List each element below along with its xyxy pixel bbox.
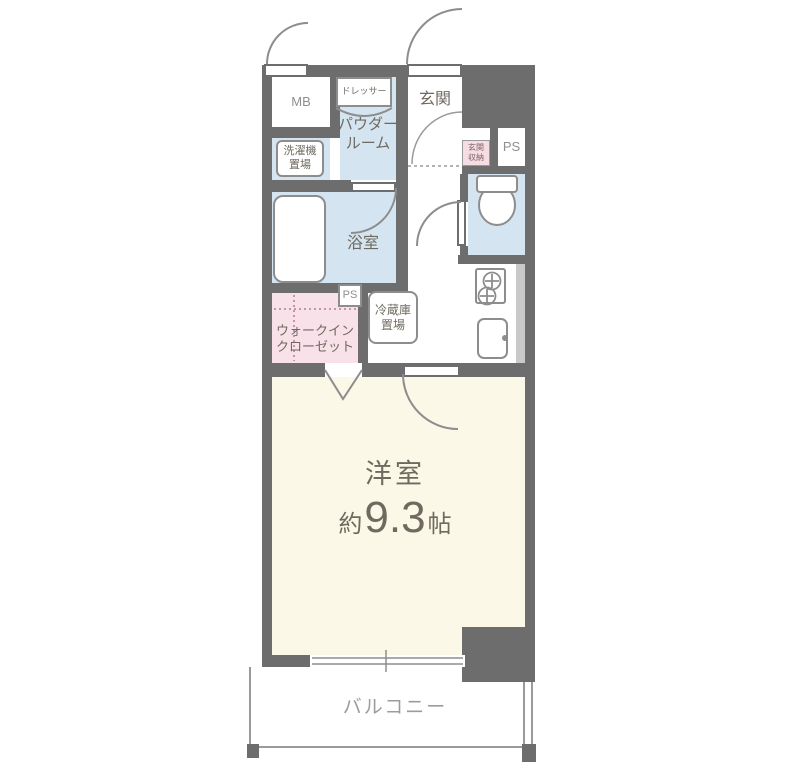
meter-box-door-arc xyxy=(267,23,308,64)
entrance-step-arc xyxy=(412,112,462,164)
toilet-door-arc xyxy=(417,202,461,246)
balcony-corner-right xyxy=(522,744,536,762)
kitchen-counter xyxy=(516,264,525,363)
wall-ps-left xyxy=(490,128,498,168)
walk-in-closet-label-line1: ウォークイン xyxy=(266,323,364,339)
powder-room-label-line1: パウダー xyxy=(330,116,406,135)
floor-plan: ドレッサー 洗濯機 置場 冷蔵庫 置場 PS PS 玄関 収納 xyxy=(0,0,800,770)
pipe-space-top-box: PS xyxy=(498,128,525,166)
wall-toilet-left-upper xyxy=(460,174,468,202)
entrance-storage-box: 玄関 収納 xyxy=(462,140,490,166)
walk-in-closet-label: ウォークイン クローゼット xyxy=(266,323,364,356)
wall-top-right-block xyxy=(462,65,535,128)
bathroom-label: 浴室 xyxy=(330,234,396,254)
washer-space-label-line2: 置場 xyxy=(289,159,311,173)
entrance-door-leaf xyxy=(407,64,462,77)
wall-main-room-top xyxy=(262,363,535,377)
kitchen-sink xyxy=(477,318,508,359)
pipe-space-mid-label: PS xyxy=(343,289,358,303)
entrance-door-arc xyxy=(407,9,462,64)
bathtub xyxy=(273,195,326,283)
closet-door-opening xyxy=(325,363,362,377)
entrance-storage-label-line1: 玄関 xyxy=(468,143,484,153)
pipe-space-mid-box: PS xyxy=(338,284,362,307)
wall-right xyxy=(525,128,535,627)
main-room-label: 洋室 xyxy=(320,458,470,492)
walk-in-closet-label-line2: クローゼット xyxy=(266,339,364,355)
main-room-size-unit: 帖 xyxy=(428,510,452,540)
fridge-space-label-line1: 冷蔵庫 xyxy=(375,303,411,318)
meter-box-label: MB xyxy=(272,94,330,110)
balcony-corner-left xyxy=(247,744,259,758)
balcony-label: バルコニー xyxy=(320,696,470,720)
main-room-size-prefix: 約 xyxy=(338,510,362,540)
entrance-storage-label-line2: 収納 xyxy=(468,153,484,163)
main-room-size-label: 約 9.3 帖 xyxy=(300,490,490,545)
washer-space-label-box: 洗濯機 置場 xyxy=(276,140,324,177)
wall-washer-bottom xyxy=(262,180,351,192)
main-room-door-leaf xyxy=(403,365,460,377)
wall-toilet-left-lower xyxy=(460,246,468,255)
bathroom-door-leaf xyxy=(351,182,396,192)
washer-space-label-line1: 洗濯機 xyxy=(284,145,317,159)
wall-mb-bottom xyxy=(262,127,340,138)
dresser: ドレッサー xyxy=(336,77,392,107)
pipe-space-top-label: PS xyxy=(503,139,520,155)
window-opening xyxy=(310,655,465,667)
dresser-label: ドレッサー xyxy=(341,86,386,97)
wall-toilet-top xyxy=(462,166,535,174)
meter-box-door-leaf xyxy=(264,64,308,77)
powder-room-label-line2: ルーム xyxy=(330,135,406,154)
powder-room-label: パウダー ルーム xyxy=(330,116,406,154)
stove xyxy=(475,268,506,304)
main-room-size-value: 9.3 xyxy=(364,490,425,545)
fridge-space-label-line2: 置場 xyxy=(381,318,405,333)
pillar-bottom-right xyxy=(462,627,535,682)
wall-toilet-bottom xyxy=(458,255,535,264)
toilet-floor xyxy=(468,174,525,255)
wall-hall-divider xyxy=(396,77,408,293)
toilet-door-leaf xyxy=(457,200,466,246)
fridge-space-label-box: 冷蔵庫 置場 xyxy=(368,291,418,344)
entrance-label: 玄関 xyxy=(408,90,462,110)
